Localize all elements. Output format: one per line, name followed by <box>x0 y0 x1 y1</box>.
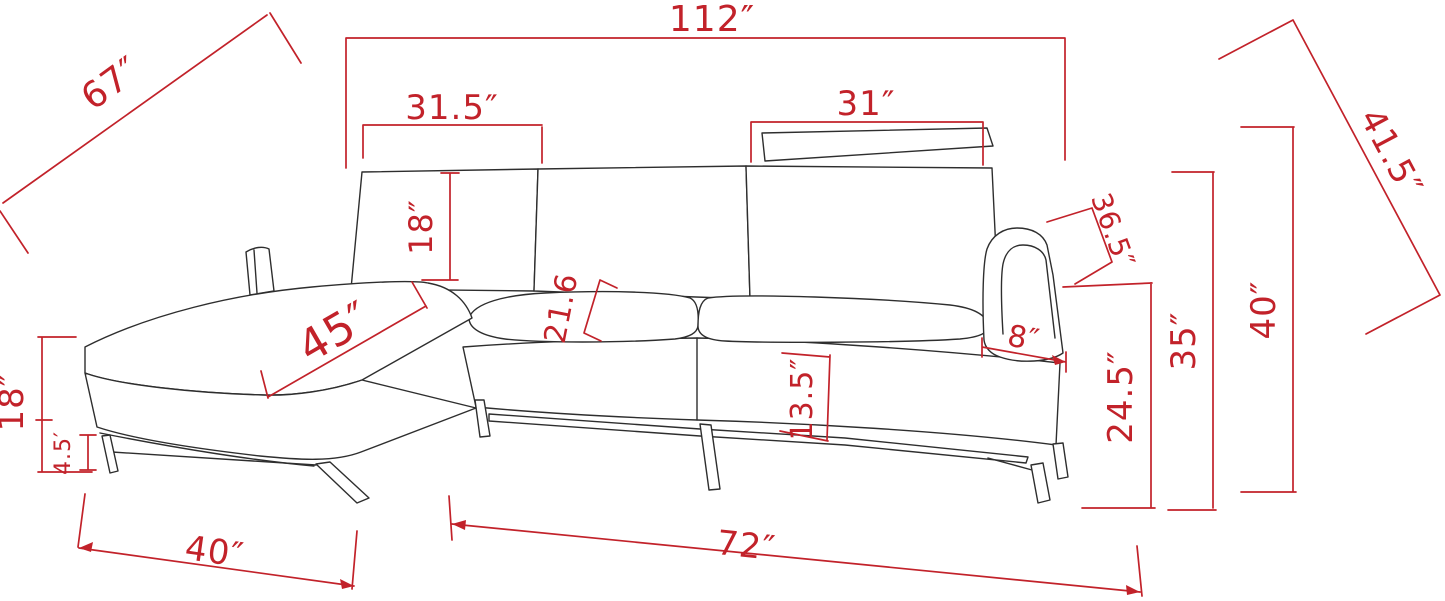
main-leg-back-right <box>1053 443 1068 479</box>
middle-seat-cushion <box>469 292 698 342</box>
dim-chaise-diagonal: 67″ <box>0 13 301 253</box>
main-leg-front-middle <box>700 424 720 490</box>
dim-back-height-label: 35″ <box>1164 312 1204 371</box>
chaise-back-panel <box>351 169 538 291</box>
dim-back-height: 35″ <box>1164 172 1216 510</box>
dimension-diagram: 112″ 67″ 31.5″ 31″ 41.5″ 18″ <box>0 0 1445 601</box>
dim-leg-height: 4.5′ <box>51 431 96 475</box>
dim-chaise-width-label: 40″ <box>183 528 247 576</box>
dim-overall-height-label: 40″ <box>1244 281 1284 340</box>
chaise-leg-right <box>316 462 369 503</box>
chaise-seat <box>85 282 472 396</box>
dim-seat-height: 18″ <box>0 337 92 472</box>
dim-headrest-width-label: 31″ <box>837 84 896 124</box>
seat-frame-face <box>463 338 1060 445</box>
dim-arm-diagonal-label: 36.5″ <box>1084 189 1142 273</box>
dim-front-length-label: 72″ <box>715 523 778 569</box>
main-leg-front-right <box>1031 463 1050 503</box>
dim-chaise-back-width-label: 31.5″ <box>405 88 498 128</box>
dim-arm-width-label: 8″ <box>1005 319 1043 359</box>
dim-seat-front-height-label: 13.5″ <box>785 357 820 440</box>
dim-arm-height: 24.5″ <box>1063 283 1155 508</box>
dim-overall-height: 40″ <box>1241 127 1296 492</box>
chaise-arm <box>246 247 274 295</box>
dim-overall-width-label: 112″ <box>669 0 755 40</box>
sofa-dimension-drawing: 112″ 67″ 31.5″ 31″ 41.5″ 18″ <box>0 0 1445 601</box>
dim-chaise-back-height-label: 18″ <box>402 199 440 255</box>
headrest <box>762 128 993 161</box>
dim-arm-diagonal: 36.5″ <box>1047 189 1142 284</box>
dim-chaise-back-width: 31.5″ <box>363 88 542 163</box>
main-leg-bracket <box>988 458 1032 470</box>
dim-seat-height-label: 18″ <box>0 373 32 432</box>
dim-chaise-width: 40″ <box>78 494 357 589</box>
dim-arm-height-label: 24.5″ <box>1101 350 1141 443</box>
dim-leg-height-label: 4.5′ <box>51 431 76 475</box>
chaise-leg-left <box>102 435 118 473</box>
dim-back-diagonal-label: 41.5″ <box>1351 102 1430 203</box>
dim-front-length: 72″ <box>449 496 1142 596</box>
